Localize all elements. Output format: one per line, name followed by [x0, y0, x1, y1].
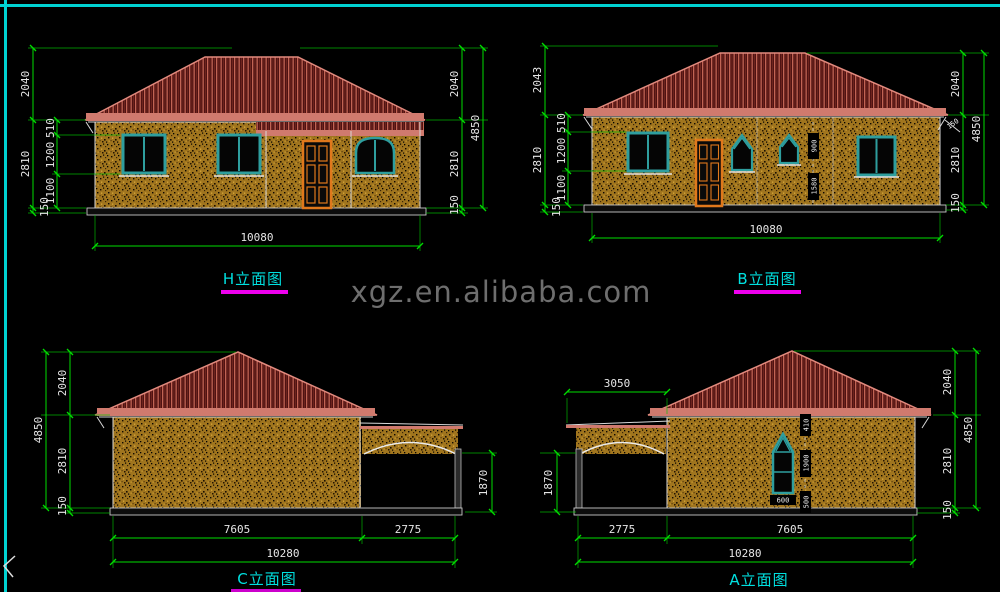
- dim-label: 2810: [949, 147, 962, 174]
- dim-label: 7605: [224, 523, 251, 536]
- watermark: xgz.en.alibaba.com: [351, 275, 652, 309]
- fascia: [650, 408, 931, 416]
- title-underline: [221, 290, 288, 294]
- window: [214, 135, 264, 176]
- dim-label: 10080: [749, 223, 782, 236]
- carport-spandrel: [362, 429, 458, 454]
- dim-label: 2810: [941, 448, 954, 475]
- dim-label: 900: [811, 140, 819, 153]
- dim-label: 2040: [448, 71, 461, 98]
- dim-label: 7605: [777, 523, 804, 536]
- fascia: [86, 113, 424, 121]
- dim-label: 410: [803, 419, 811, 432]
- elevation-c-building: [95, 352, 463, 515]
- dim-label: 3050: [604, 377, 631, 390]
- dim-label: 150: [949, 193, 962, 213]
- dim-label: 4850: [970, 116, 983, 143]
- dim-label: 1100: [555, 175, 568, 202]
- cad-drawing-canvas: 2040 2810 150 510 1200 1100 2040 2810 15…: [0, 0, 1000, 592]
- plinth-base: [574, 508, 917, 515]
- frame-border-top: [0, 4, 1000, 7]
- plinth-base: [110, 508, 462, 515]
- title-underline: [734, 290, 801, 294]
- dim-label: 2810: [448, 151, 461, 178]
- elevation-h-building: [85, 57, 426, 215]
- dim-label: 2040: [56, 370, 69, 397]
- dim-label: 150: [56, 496, 69, 516]
- roof: [85, 57, 425, 120]
- carport: [360, 423, 463, 508]
- window: [119, 135, 169, 176]
- elevation-c: 4850 2040 2810 150 1870 7605 2775 10280 …: [32, 352, 497, 592]
- dim-label: 2040: [941, 369, 954, 396]
- dim-label: 1870: [477, 470, 490, 497]
- elevation-b: 2043 2810 150 510 1200 1100 2040 2810 15…: [531, 46, 989, 294]
- plinth-base: [584, 205, 946, 212]
- dim-label: 2775: [395, 523, 422, 536]
- roof: [583, 53, 948, 115]
- dim-label: 2775: [609, 523, 636, 536]
- carport: [566, 421, 670, 508]
- elevation-c-title: C立面图: [237, 570, 296, 588]
- roof: [648, 351, 931, 415]
- elevation-b-title: B立面图: [737, 270, 796, 288]
- elevation-a-title: A立面图: [729, 571, 788, 589]
- dim-label: 1100: [44, 178, 57, 205]
- window: [624, 133, 672, 174]
- elevation-a-building: [566, 351, 931, 515]
- arched-window: [352, 138, 398, 176]
- dim-label: 1200: [44, 142, 57, 169]
- elevation-a: 3050 1870 2040 2810 150 4850 410 1900 50…: [540, 351, 981, 589]
- plinth-base: [87, 208, 426, 215]
- dim-label: 2043: [531, 67, 544, 94]
- dim-label: 600: [777, 497, 790, 505]
- cad-drawing: 2040 2810 150 510 1200 1100 2040 2810 15…: [0, 0, 1000, 592]
- dim-label: 2040: [19, 71, 32, 98]
- door: [303, 141, 331, 208]
- dim-label: 4850: [32, 417, 45, 444]
- window: [854, 137, 899, 177]
- dim-label: 1870: [542, 470, 555, 497]
- dim-label: 2810: [56, 448, 69, 475]
- dim-label: 4850: [962, 417, 975, 444]
- dim-label: 150: [448, 195, 461, 215]
- dim-label: 10280: [266, 547, 299, 560]
- fascia: [97, 408, 375, 416]
- dim-label: 500: [803, 496, 811, 509]
- porch-roof: [256, 122, 424, 131]
- door: [696, 140, 722, 206]
- dim-label: 1900: [803, 455, 811, 472]
- porch-fascia: [256, 130, 424, 136]
- dim-label: 510: [555, 113, 568, 133]
- dim-label: 1580: [811, 178, 819, 195]
- elevation-b-building: [583, 53, 948, 212]
- elevation-h-title: H立面图: [223, 270, 283, 288]
- carport-fascia: [360, 426, 463, 429]
- dim-label: 2040: [949, 71, 962, 98]
- dim-label: 2810: [531, 147, 544, 174]
- fascia: [584, 108, 946, 116]
- frame-border-left: [4, 0, 7, 592]
- wall: [113, 417, 361, 508]
- carport-post: [576, 449, 582, 508]
- dim-label: 10280: [728, 547, 761, 560]
- carport-fascia: [566, 425, 670, 428]
- dim-label: 150: [941, 500, 954, 520]
- dim-label: 4850: [469, 115, 482, 142]
- dim-label: 10080: [240, 231, 273, 244]
- dim-label: 510: [44, 118, 57, 138]
- dim-label: 2810: [19, 151, 32, 178]
- dim-label: 150: [946, 117, 961, 131]
- roof: [95, 352, 377, 415]
- carport-post: [455, 449, 461, 508]
- dim-label: 1200: [555, 138, 568, 165]
- elevation-h: 2040 2810 150 510 1200 1100 2040 2810 15…: [19, 48, 488, 294]
